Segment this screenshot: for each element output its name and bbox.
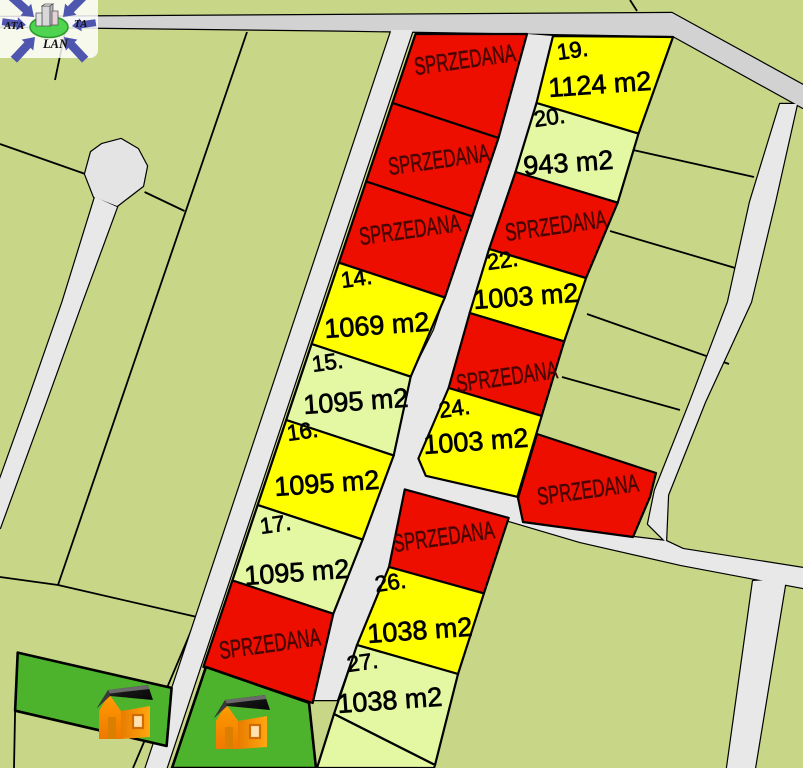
svg-text:19.: 19.: [555, 36, 589, 65]
svg-text:22.: 22.: [485, 246, 519, 275]
svg-text:14.: 14.: [339, 264, 373, 293]
svg-text:26.: 26.: [373, 568, 407, 597]
svg-text:943 m2: 943 m2: [522, 145, 614, 181]
svg-text:ATA: ATA: [3, 20, 24, 32]
svg-text:20.: 20.: [532, 103, 566, 132]
svg-text:LAN: LAN: [42, 37, 69, 51]
svg-text:24.: 24.: [437, 394, 471, 423]
svg-text:17.: 17.: [258, 510, 292, 539]
svg-text:27.: 27.: [345, 648, 379, 677]
svg-text:16.: 16.: [285, 417, 319, 446]
svg-text:15.: 15.: [310, 348, 344, 377]
svg-text:TA: TA: [74, 18, 87, 30]
